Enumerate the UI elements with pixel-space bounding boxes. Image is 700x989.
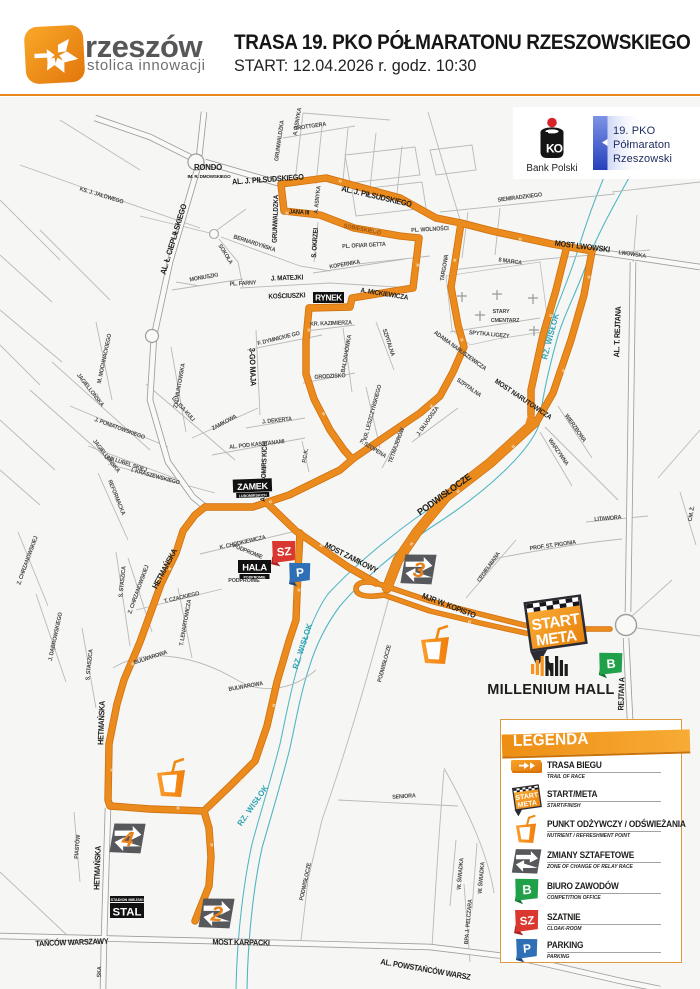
svg-text:»: » <box>414 263 421 268</box>
svg-text:AL. T. REJTANA: AL. T. REJTANA <box>612 306 623 358</box>
svg-text:SZ: SZ <box>276 546 292 559</box>
svg-text:MOST KARPACKI: MOST KARPACKI <box>212 937 270 947</box>
svg-text:ZAMEK: ZAMEK <box>237 481 269 492</box>
svg-text:J. MATEJKI: J. MATEJKI <box>271 274 304 282</box>
svg-text:STAL: STAL <box>113 907 142 919</box>
svg-text:STARY: STARY <box>493 309 510 315</box>
svg-text:P: P <box>522 941 531 956</box>
svg-text:IM. R. DMOWSKIEGO: IM. R. DMOWSKIEGO <box>187 174 231 179</box>
svg-text:Bank Polski: Bank Polski <box>526 163 577 174</box>
svg-text:JANA III: JANA III <box>289 208 310 216</box>
svg-text:»: » <box>176 805 180 812</box>
svg-text:19. PKO: 19. PKO <box>613 125 656 137</box>
svg-text:KO: KO <box>546 142 563 156</box>
svg-text:HALA: HALA <box>242 562 267 573</box>
svg-text:SZ: SZ <box>519 915 535 928</box>
svg-text:STADION MIEJSKI: STADION MIEJSKI <box>110 898 143 902</box>
svg-text:RONDO: RONDO <box>194 163 222 172</box>
svg-text:»: » <box>108 768 115 772</box>
svg-text:3-GO MAJA: 3-GO MAJA <box>247 348 258 387</box>
svg-text:B: B <box>606 657 616 672</box>
svg-text:»: » <box>208 843 215 847</box>
svg-text:Rzeszowski: Rzeszowski <box>613 153 672 165</box>
svg-text:»: » <box>458 338 465 343</box>
svg-text:»: » <box>451 258 458 263</box>
svg-text:B: B <box>522 882 532 898</box>
svg-text:PODPROMIE: PODPROMIE <box>244 575 267 579</box>
svg-text:REJTAN A: REJTAN A <box>616 676 627 710</box>
svg-text:RYNEK: RYNEK <box>315 294 342 303</box>
svg-text:MILLENIUM HALL: MILLENIUM HALL <box>487 682 614 698</box>
svg-text:»: » <box>305 328 312 332</box>
svg-text:Półmaraton: Półmaraton <box>613 139 670 151</box>
svg-text:SKA: SKA <box>97 966 104 977</box>
svg-text:HETMAŃSKA: HETMAŃSKA <box>92 845 103 890</box>
svg-text:CMENTARZ: CMENTARZ <box>491 318 520 324</box>
svg-text:»: » <box>295 588 302 592</box>
svg-text:HETMAŃSKA: HETMAŃSKA <box>96 700 107 745</box>
svg-text:P: P <box>295 565 304 580</box>
